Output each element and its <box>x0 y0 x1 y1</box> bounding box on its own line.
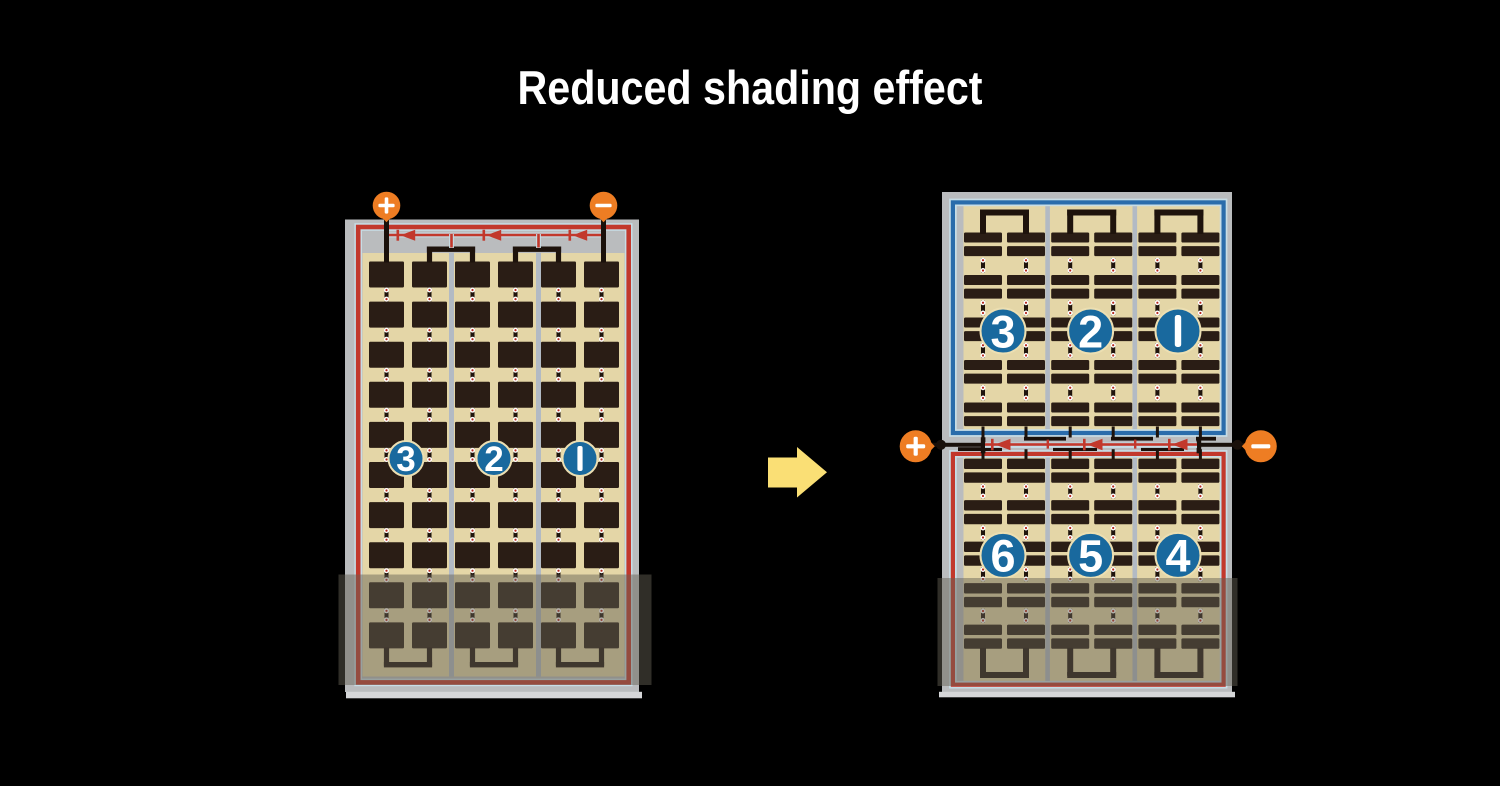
svg-text:5: 5 <box>1078 531 1103 582</box>
svg-text:6: 6 <box>990 531 1015 582</box>
svg-text:3: 3 <box>990 306 1015 357</box>
svg-text:2: 2 <box>484 440 503 479</box>
svg-text:Reduced shading effect: Reduced shading effect <box>518 61 983 114</box>
svg-text:2: 2 <box>1078 306 1103 357</box>
svg-text:4: 4 <box>1165 531 1190 582</box>
svg-text:3: 3 <box>396 440 415 479</box>
